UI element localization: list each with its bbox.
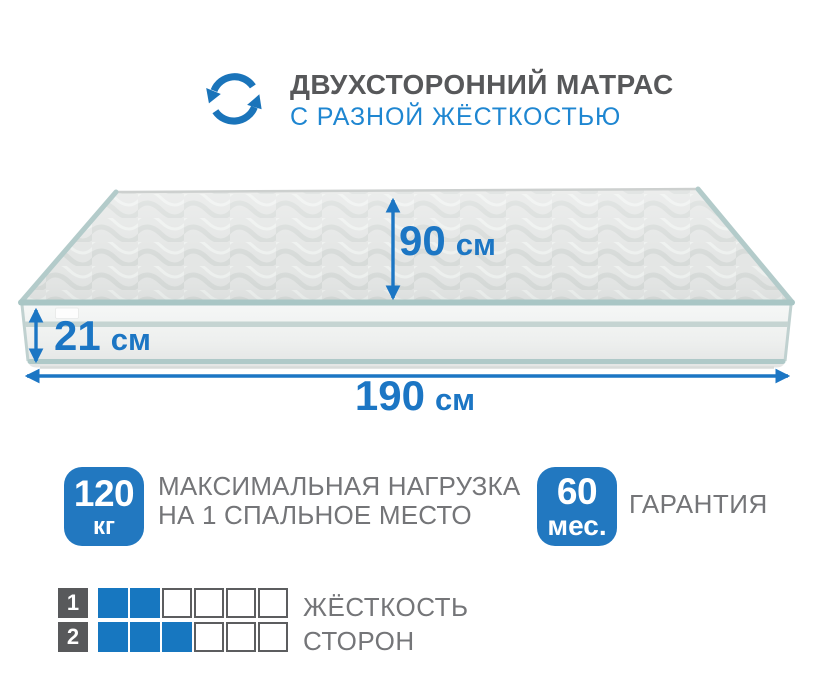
firmness-cell-empty bbox=[258, 588, 288, 618]
warranty-badge: 60 мес. bbox=[537, 467, 617, 546]
mattress-infographic: ДВУХСТОРОННИЙ МАТРАС С РАЗНОЙ ЖЁСТКОСТЬЮ bbox=[0, 0, 816, 700]
length-value: 190 bbox=[355, 375, 425, 417]
side-number-badge: 1 bbox=[58, 588, 88, 618]
height-value: 21 bbox=[54, 315, 101, 357]
max-load-unit: кг bbox=[93, 515, 115, 539]
rotate-arrows-icon bbox=[203, 64, 265, 134]
firmness-row-side1: 1 bbox=[58, 588, 288, 618]
width-unit: см bbox=[456, 229, 496, 260]
firmness-cell-empty bbox=[162, 588, 192, 618]
page-subtitle: С РАЗНОЙ ЖЁСТКОСТЬЮ bbox=[290, 103, 621, 132]
width-value: 90 bbox=[399, 220, 446, 262]
max-load-description: МАКСИМАЛЬНАЯ НАГРУЗКА НА 1 СПАЛЬНОЕ МЕСТ… bbox=[158, 472, 520, 530]
dimension-width-label: 90 см bbox=[399, 220, 496, 262]
firmness-cell-filled bbox=[130, 622, 160, 652]
height-unit: см bbox=[111, 324, 151, 355]
firmness-cell-empty bbox=[194, 588, 224, 618]
firmness-cell-empty bbox=[226, 622, 256, 652]
firmness-cell-filled bbox=[98, 588, 128, 618]
length-unit: см bbox=[435, 384, 475, 415]
max-load-badge: 120 кг bbox=[64, 467, 144, 546]
firmness-cell-filled bbox=[162, 622, 192, 652]
warranty-value: 60 bbox=[557, 473, 597, 510]
page-title: ДВУХСТОРОННИЙ МАТРАС bbox=[290, 70, 674, 99]
firmness-scale-side1 bbox=[98, 588, 288, 618]
warranty-description: ГАРАНТИЯ bbox=[629, 489, 768, 520]
firmness-label-line1: ЖЁСТКОСТЬ bbox=[303, 592, 469, 623]
firmness-indicator: 1 2 bbox=[58, 588, 288, 652]
firmness-row-side2: 2 bbox=[58, 622, 288, 652]
firmness-cell-filled bbox=[98, 622, 128, 652]
firmness-cell-filled bbox=[130, 588, 160, 618]
firmness-cell-empty bbox=[226, 588, 256, 618]
max-load-line2: НА 1 СПАЛЬНОЕ МЕСТО bbox=[158, 501, 520, 530]
firmness-scale-side2 bbox=[98, 622, 288, 652]
side-number-badge: 2 bbox=[58, 622, 88, 652]
firmness-cell-empty bbox=[194, 622, 224, 652]
firmness-cell-empty bbox=[258, 622, 288, 652]
warranty-unit: мес. bbox=[547, 512, 606, 540]
dimension-height-label: 21 см bbox=[54, 315, 151, 357]
max-load-line1: МАКСИМАЛЬНАЯ НАГРУЗКА bbox=[158, 472, 520, 501]
max-load-value: 120 bbox=[74, 475, 134, 512]
dimension-length-label: 190 см bbox=[330, 375, 500, 417]
firmness-label-line2: СТОРОН bbox=[303, 626, 415, 657]
